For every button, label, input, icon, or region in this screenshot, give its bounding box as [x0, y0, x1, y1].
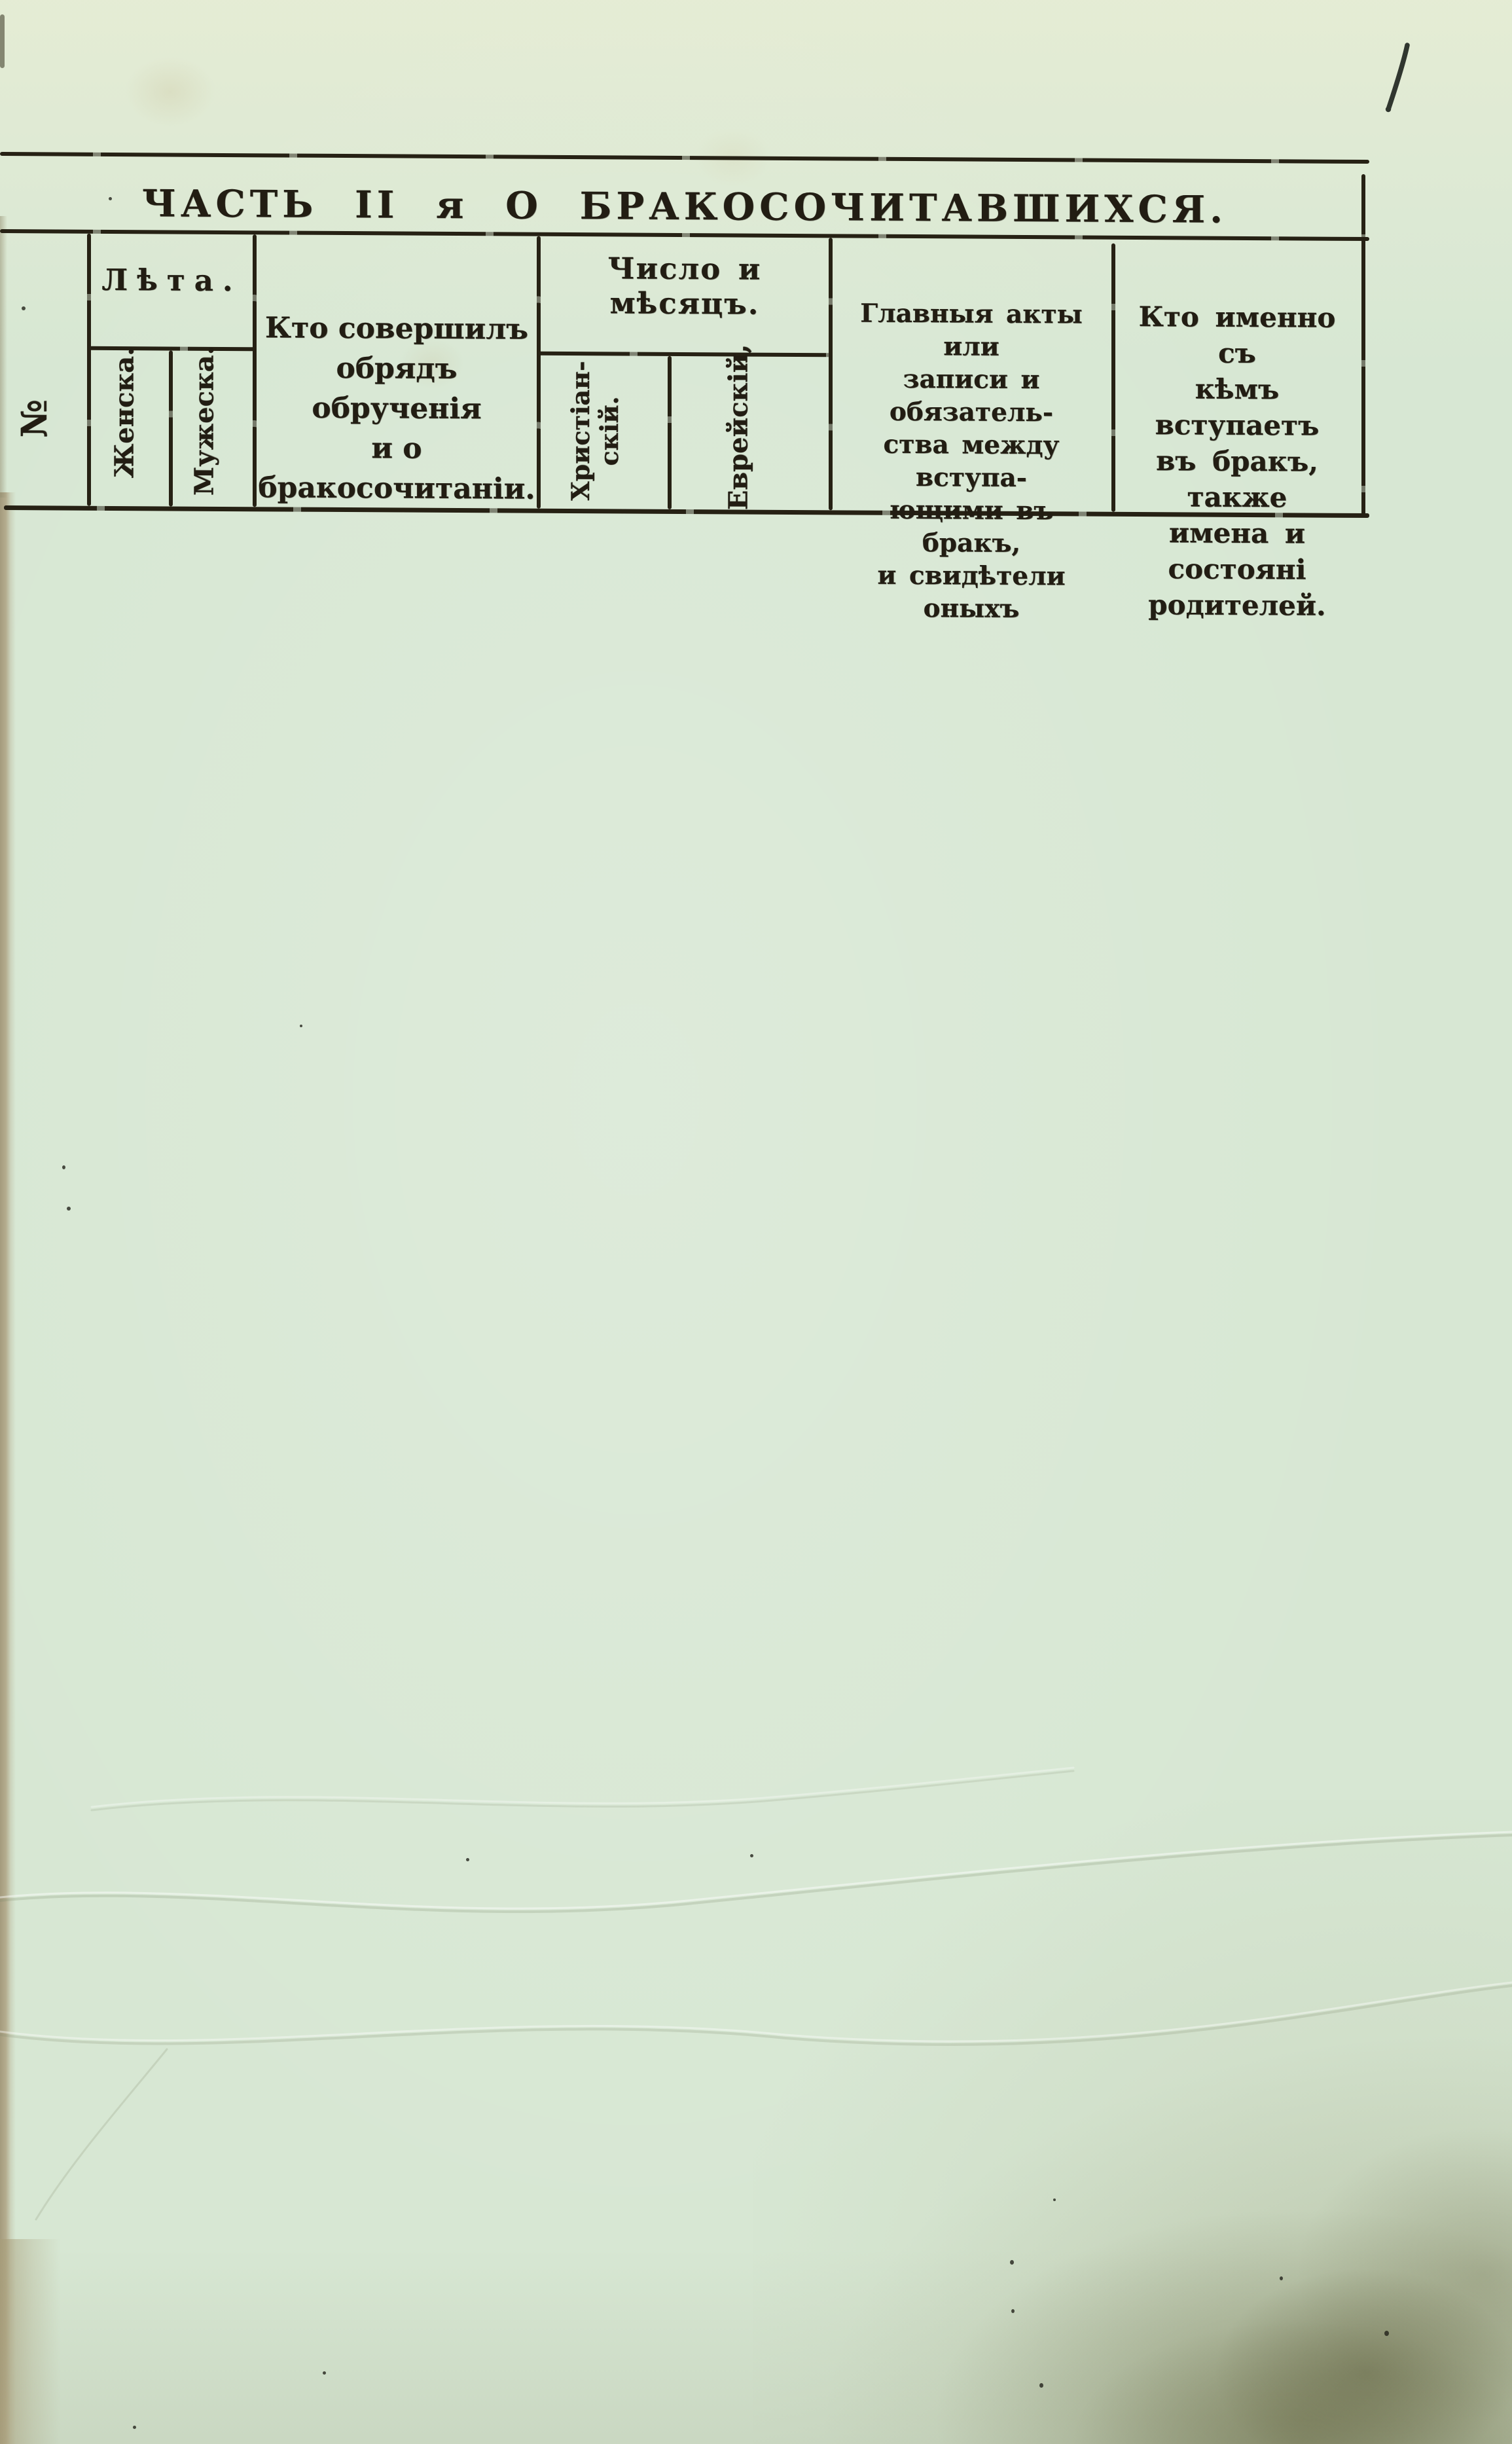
ink-speck [67, 1207, 71, 1211]
page-left-edge-bottom [0, 2239, 60, 2444]
divider-female-male [169, 350, 173, 506]
ink-speck [1011, 2309, 1015, 2313]
spouses-line: имена и состояні [1117, 515, 1358, 588]
officiant-line: Кто совершилъ [257, 308, 537, 349]
bottom-right-stain [949, 1997, 1512, 2444]
divider-acts-spouses [1111, 244, 1115, 512]
ink-speck [300, 1025, 302, 1027]
ink-speck [1053, 2198, 1056, 2201]
ink-speck [1384, 2331, 1389, 2336]
acts-line: ющими въ бракъ, [835, 493, 1107, 560]
ink-speck [1280, 2276, 1283, 2280]
ink-speck [466, 1858, 469, 1861]
ink-speck [1039, 2383, 1043, 2388]
ink-speck [62, 1165, 65, 1169]
column-header-acts: Главныя акты или записи и обязатель- ств… [835, 297, 1107, 625]
register-header-table: ЧАСТЬ II я О БРАКОСОЧИТАВШИХСЯ. № Лѣта. … [0, 152, 1369, 528]
spouses-line: въ бракъ, также [1117, 443, 1358, 516]
page-left-edge [0, 492, 16, 2444]
christian-line: скій. [595, 361, 624, 501]
ink-speck [1010, 2260, 1014, 2265]
ink-speck [750, 1854, 753, 1857]
acts-line: ства между вступа- [835, 428, 1107, 494]
date-subheader-rule [537, 352, 833, 357]
acts-line: записи и обязатель- [835, 362, 1107, 429]
column-header-number: № [13, 399, 55, 438]
divider-christian-jewish [668, 356, 672, 509]
acts-line: Главныя акты или [835, 297, 1107, 363]
ink-speck [323, 2371, 326, 2375]
scanned-register-page: ЧАСТЬ II я О БРАКОСОЧИТАВШИХСЯ. № Лѣта. … [0, 0, 1512, 2444]
column-header-spouses: Кто именно съ кѣмъ вступаетъ въ бракъ, т… [1117, 299, 1358, 624]
subcolumn-header-christian-date: Христіан- скій. [566, 361, 624, 501]
ink-speck [109, 197, 112, 200]
spouses-line: кѣмъ вступаетъ [1117, 371, 1358, 444]
officiant-line: обрядъ обрученія [257, 348, 537, 429]
handwritten-page-number [1373, 34, 1432, 126]
subcolumn-header-male-age: Мужеска. [189, 346, 220, 496]
officiant-line: и о бракосочитаніи. [257, 428, 537, 509]
spouses-line: Кто именно съ [1117, 299, 1358, 372]
ink-speck [22, 306, 26, 310]
acts-line: и свидѣтели оныхъ [835, 558, 1107, 625]
foxing-spot [124, 56, 216, 128]
spouses-line: родителей. [1117, 587, 1358, 624]
table-border-top [0, 152, 1369, 164]
subcolumn-header-female-age: Женска. [109, 347, 140, 479]
table-title: ЧАСТЬ II я О БРАКОСОЧИТАВШИХСЯ. [0, 181, 1369, 232]
ink-speck [133, 2426, 136, 2429]
subcolumn-header-jewish-date: Еврейскій, [723, 344, 754, 511]
column-header-officiant: Кто совершилъ обрядъ обрученія и о брако… [257, 308, 537, 509]
column-header-age: Лѣта. [87, 263, 257, 298]
christian-line: Христіан- [566, 361, 595, 501]
page-corner-sliver [0, 14, 5, 68]
column-header-date: Число и мѣсяцъ. [537, 251, 833, 322]
